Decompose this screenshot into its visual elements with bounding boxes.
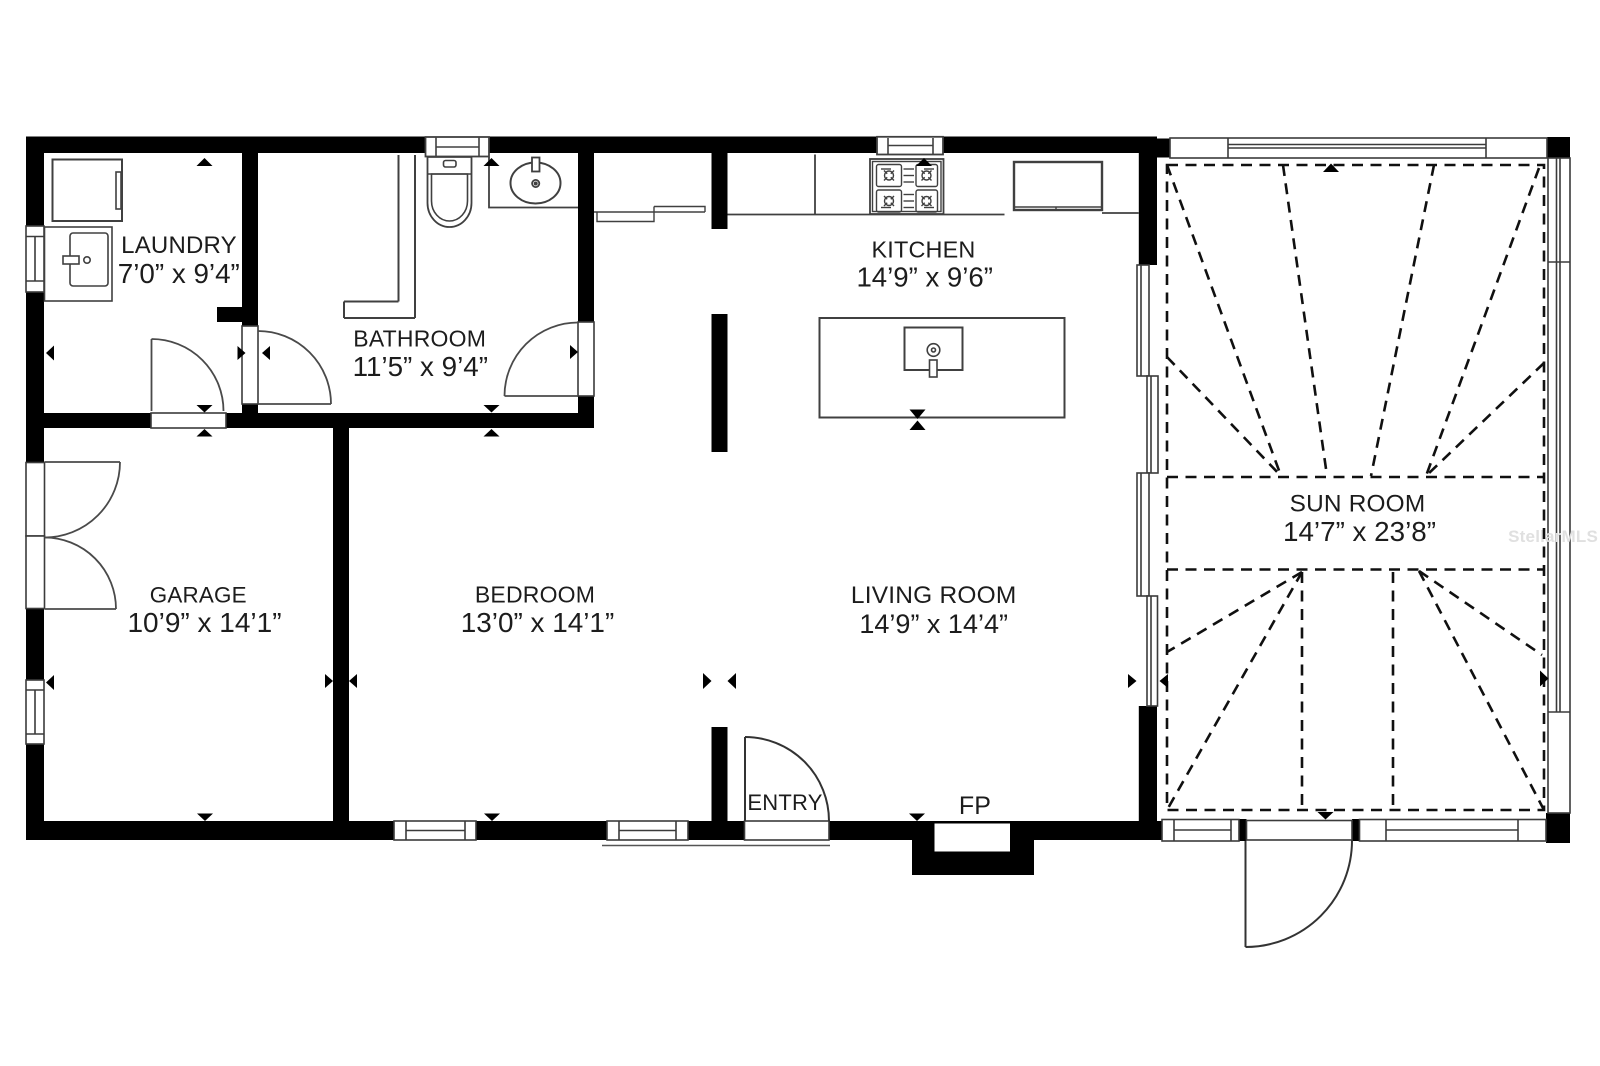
svg-text:StellarMLS: StellarMLS <box>1508 527 1598 546</box>
svg-text:LAUNDRY: LAUNDRY <box>121 232 237 259</box>
svg-text:BATHROOM: BATHROOM <box>353 326 486 352</box>
svg-text:GARAGE: GARAGE <box>150 583 247 608</box>
svg-text:KITCHEN: KITCHEN <box>871 237 975 263</box>
svg-text:14’9” x 9’6”: 14’9” x 9’6” <box>856 262 993 293</box>
svg-text:FP: FP <box>959 792 991 820</box>
svg-text:14’7” x 23’8”: 14’7” x 23’8” <box>1283 516 1436 547</box>
svg-text:13’0” x 14’1”: 13’0” x 14’1” <box>461 607 614 638</box>
svg-text:ENTRY: ENTRY <box>747 790 822 815</box>
svg-text:LIVING ROOM: LIVING ROOM <box>851 582 1017 609</box>
svg-text:11’5” x 9’4”: 11’5” x 9’4” <box>353 351 488 382</box>
svg-text:7’0” x 9’4”: 7’0” x 9’4” <box>118 258 240 289</box>
svg-text:10’9” x 14’1”: 10’9” x 14’1” <box>127 607 281 638</box>
svg-text:BEDROOM: BEDROOM <box>475 582 595 608</box>
svg-text:14’9” x 14’4”: 14’9” x 14’4” <box>859 609 1008 639</box>
svg-text:SUN ROOM: SUN ROOM <box>1290 491 1426 518</box>
